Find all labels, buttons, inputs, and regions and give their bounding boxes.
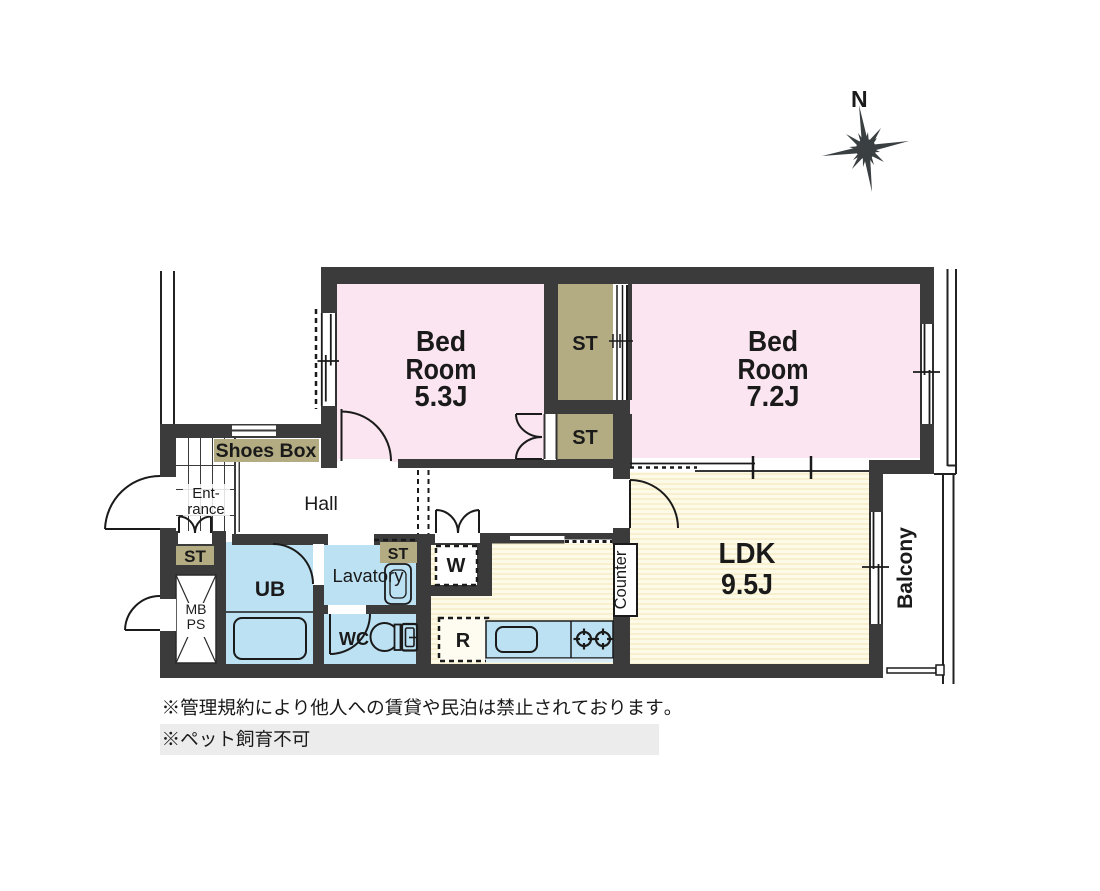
svg-text:W: W (447, 555, 466, 577)
svg-text:rance: rance (187, 501, 225, 518)
svg-text:Shoes Box: Shoes Box (216, 440, 317, 462)
svg-text:ST: ST (572, 427, 598, 449)
svg-text:N: N (851, 86, 868, 112)
svg-text:Lavatory: Lavatory (333, 565, 405, 586)
svg-text:ST: ST (572, 333, 598, 355)
svg-text:5.3J: 5.3J (415, 381, 468, 413)
svg-text:Balcony: Balcony (894, 527, 917, 609)
svg-text:UB: UB (255, 578, 285, 601)
svg-text:7.2J: 7.2J (747, 381, 800, 413)
svg-text:LDK: LDK (719, 538, 776, 570)
svg-text:Hall: Hall (304, 493, 338, 515)
svg-text:R: R (456, 630, 471, 652)
svg-text:ST: ST (388, 546, 409, 563)
svg-text:MB: MB (186, 601, 207, 617)
svg-text:Ent-: Ent- (192, 485, 220, 502)
svg-text:Counter: Counter (612, 550, 630, 609)
svg-text:PS: PS (187, 616, 206, 632)
svg-text:9.5J: 9.5J (721, 569, 773, 601)
svg-text:WC: WC (339, 629, 369, 649)
svg-text:ST: ST (184, 547, 206, 566)
